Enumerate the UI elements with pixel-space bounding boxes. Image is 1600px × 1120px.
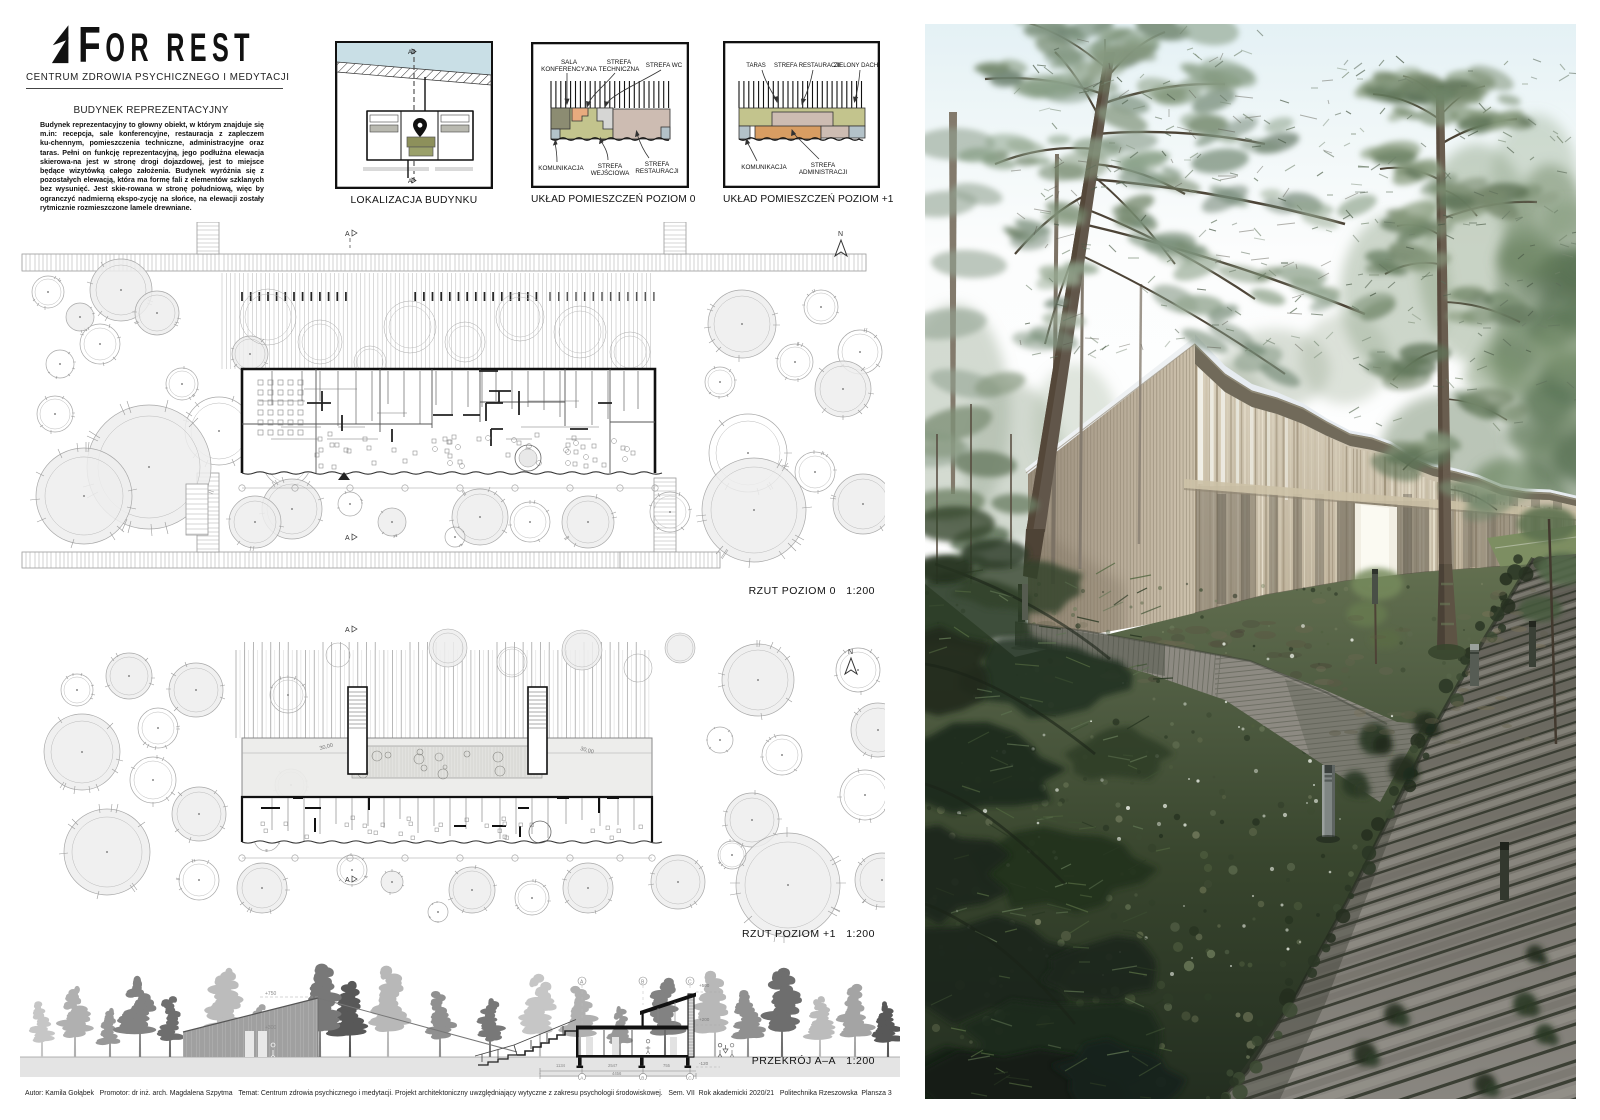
svg-text:N: N bbox=[838, 231, 843, 238]
svg-text:4456: 4456 bbox=[612, 1071, 622, 1076]
svg-text:A: A bbox=[345, 535, 350, 542]
svg-text:N: N bbox=[848, 649, 853, 656]
svg-text:STREFA: STREFA bbox=[645, 161, 670, 168]
svg-text:RESTAURACJI: RESTAURACJI bbox=[635, 168, 679, 175]
svg-text:A: A bbox=[345, 231, 350, 238]
svg-text:ZIELONY DACH: ZIELONY DACH bbox=[834, 63, 878, 69]
svg-text:+300: +300 bbox=[265, 1025, 276, 1031]
svg-text:+750: +750 bbox=[265, 991, 276, 997]
svg-text:1134: 1134 bbox=[556, 1063, 566, 1068]
svg-text:F: F bbox=[78, 24, 101, 64]
svg-text:KOMUNIKACJA: KOMUNIKACJA bbox=[741, 164, 787, 171]
svg-text:KONFERENCYJNA: KONFERENCYJNA bbox=[541, 66, 597, 73]
svg-text:TARAS: TARAS bbox=[746, 63, 766, 69]
svg-text:STREFA: STREFA bbox=[607, 59, 632, 66]
svg-text:B: B bbox=[641, 1075, 644, 1080]
svg-text:A: A bbox=[408, 50, 412, 56]
svg-text:ADMINISTRACJI: ADMINISTRACJI bbox=[799, 169, 848, 176]
svg-text:A: A bbox=[408, 179, 412, 185]
svg-text:STREFA: STREFA bbox=[811, 162, 836, 169]
svg-text:OR REST: OR REST bbox=[105, 26, 254, 64]
svg-text:KOMUNIKACJA: KOMUNIKACJA bbox=[538, 165, 584, 172]
svg-text:STREFA WC: STREFA WC bbox=[646, 62, 683, 69]
svg-text:STREFA RESTAURACJI: STREFA RESTAURACJI bbox=[774, 63, 840, 69]
svg-text:+200: +200 bbox=[699, 1017, 710, 1022]
svg-text:A: A bbox=[345, 877, 350, 884]
svg-text:A: A bbox=[345, 627, 350, 634]
svg-text:2547: 2547 bbox=[608, 1063, 618, 1068]
svg-text:WEJŚCIOWA: WEJŚCIOWA bbox=[591, 168, 630, 177]
svg-text:C: C bbox=[688, 980, 692, 986]
svg-text:STREFA: STREFA bbox=[598, 163, 623, 170]
svg-text:+500: +500 bbox=[699, 983, 710, 988]
svg-text:SALA: SALA bbox=[561, 59, 578, 66]
svg-text:TECHNICZNA: TECHNICZNA bbox=[599, 66, 640, 73]
